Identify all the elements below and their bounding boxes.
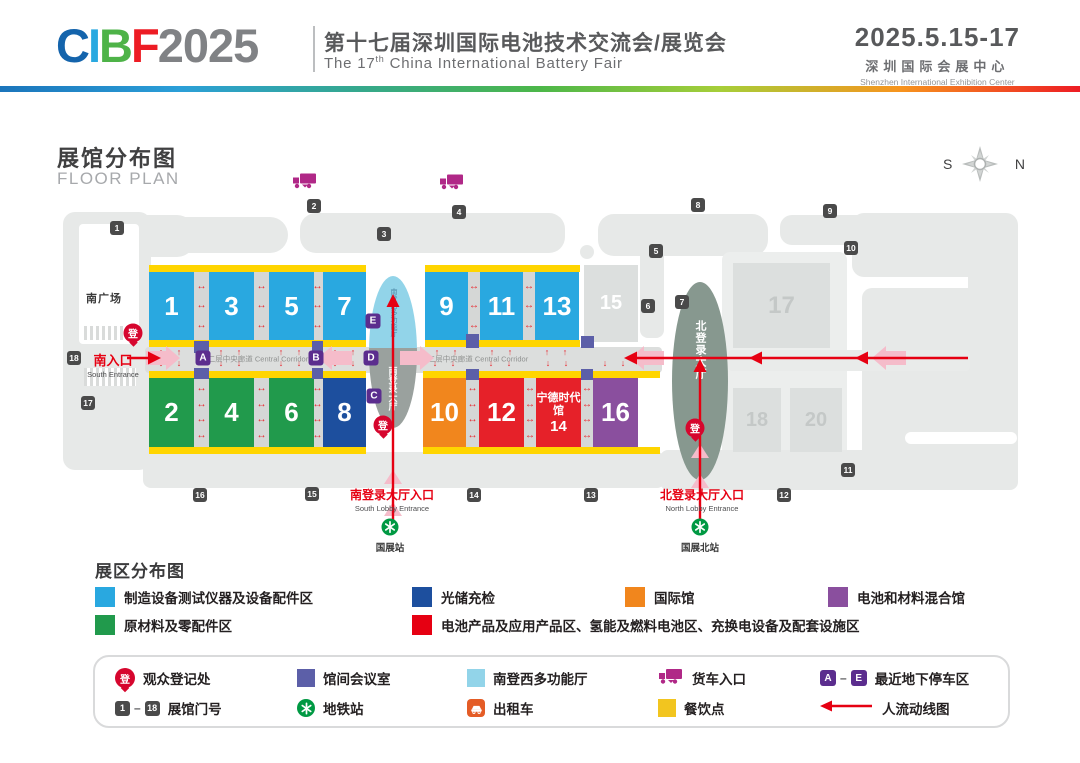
- zone-color-swatch: [625, 587, 645, 607]
- down-arrow-icon: ↓: [177, 359, 182, 368]
- truck-entrance-icon: [658, 667, 684, 690]
- gate-5: 5: [649, 244, 663, 258]
- hall-gap-corridor: ↔↔↔: [468, 272, 480, 340]
- two-way-arrow-icon: ↔: [582, 431, 592, 441]
- two-way-arrow-icon: ↔: [197, 282, 207, 292]
- zone-legend-item: 电池产品及应用产品区、氢能及燃料电池区、充换电设备及配套设施区: [412, 614, 860, 636]
- zone-legend-label: 国际馆: [654, 587, 695, 607]
- meeting-room-square: [466, 369, 479, 380]
- legend-item-metro: 地铁站: [297, 696, 364, 720]
- cibf-logo: CIBF2025: [56, 20, 258, 72]
- hall-yellow-strip: [425, 265, 580, 272]
- hall-16: 16: [593, 378, 638, 447]
- two-way-arrow-icon: ↔: [525, 400, 535, 410]
- two-way-arrow-icon: ↔: [469, 321, 479, 331]
- legend-item-food: 餐饮点: [658, 696, 725, 720]
- hall-yellow-strip: [425, 340, 580, 347]
- hall-1: 1: [149, 272, 194, 340]
- two-way-arrow-icon: ↔: [197, 400, 207, 410]
- zone-legend-item: 光储充检: [412, 586, 495, 608]
- down-arrow-icon: ↓: [621, 359, 626, 368]
- hall-yellow-strip: [149, 340, 366, 347]
- up-arrow-icon: ↑: [159, 348, 164, 357]
- zone-legend-item: 电池和材料混合馆: [828, 586, 965, 608]
- two-way-arrow-icon: ↔: [525, 384, 535, 394]
- legend-item-reg: 登观众登记处: [115, 666, 211, 690]
- hall-4: 4: [209, 378, 254, 447]
- truck-entrance-icon: [439, 173, 465, 196]
- hall-yellow-strip: [149, 371, 366, 378]
- two-way-arrow-icon: ↔: [257, 282, 267, 292]
- metro-station-label: 国展站: [376, 540, 405, 554]
- hall-20: 20: [790, 388, 842, 452]
- gate-7: 7: [675, 295, 689, 309]
- hall-yellow-strip: [149, 447, 366, 454]
- zone-color-swatch: [412, 615, 432, 635]
- south-entrance-label: 南入口 South Entrance: [87, 350, 139, 379]
- hall-17: 17: [733, 263, 830, 348]
- event-title-zh: 第十七届深圳国际电池技术交流会/展览会: [324, 27, 727, 57]
- down-arrow-icon: ↓: [546, 359, 551, 368]
- hall-14: 宁德时代馆14: [536, 378, 581, 447]
- two-way-arrow-icon: ↔: [257, 301, 267, 311]
- hall-gap-corridor: ↔↔↔: [194, 272, 209, 340]
- zone-legend-title: 展区分布图: [95, 557, 185, 582]
- central-corridor-label: 二层中央廊道 Central Corridor: [428, 354, 528, 365]
- legend-label: 馆间会议室: [323, 668, 391, 688]
- metro-station-icon: [692, 519, 709, 536]
- venue-zh: 深圳国际会展中心: [855, 56, 1020, 75]
- hall-2: 2: [149, 378, 194, 447]
- gate-3: 3: [377, 227, 391, 241]
- zone-color-swatch: [412, 587, 432, 607]
- zone-legend-item: 制造设备测试仪器及设备配件区: [95, 586, 313, 608]
- parking-marker-E: E: [366, 314, 381, 329]
- gate-range-icon: 1–18: [115, 701, 160, 716]
- two-way-arrow-icon: ↔: [525, 415, 535, 425]
- down-arrow-icon: ↓: [351, 359, 356, 368]
- two-way-arrow-icon: ↔: [468, 384, 478, 394]
- map-blob: [143, 452, 665, 488]
- hall-3: 3: [209, 272, 254, 340]
- two-way-arrow-icon: ↔: [257, 431, 267, 441]
- logo-divider: [313, 26, 315, 72]
- gate-11: 11: [841, 463, 855, 477]
- two-way-arrow-icon: ↔: [197, 301, 207, 311]
- two-way-arrow-icon: ↔: [313, 431, 323, 441]
- hall-yellow-strip: [149, 265, 366, 272]
- hall-9: 9: [425, 272, 468, 340]
- two-way-arrow-icon: ↔: [468, 400, 478, 410]
- parking-marker-C: C: [367, 389, 382, 404]
- hall-18: 18: [733, 388, 781, 452]
- zone-legend-label: 电池和材料混合馆: [857, 587, 965, 607]
- legend-label: 最近地下停车区: [875, 668, 970, 688]
- hall-13: 13: [535, 272, 579, 340]
- meeting-room-square: [581, 369, 593, 380]
- hall-gap-corridor: ↔↔↔↔: [466, 378, 479, 447]
- gate-16: 16: [193, 488, 207, 502]
- gate-9: 9: [823, 204, 837, 218]
- meeting-room-square: [194, 368, 209, 379]
- down-arrow-icon: ↓: [333, 359, 338, 368]
- two-way-arrow-icon: ↔: [257, 415, 267, 425]
- two-way-arrow-icon: ↔: [524, 301, 534, 311]
- meeting-room-square: [581, 336, 594, 348]
- two-way-arrow-icon: ↔: [582, 400, 592, 410]
- central-corridor-label: 二层中央廊道 Central Corridor: [208, 354, 308, 365]
- compass-icon: S N: [938, 143, 1028, 185]
- zone-legend-label: 原材料及零配件区: [124, 615, 232, 635]
- two-way-arrow-icon: ↔: [313, 301, 323, 311]
- gate-8: 8: [691, 198, 705, 212]
- two-way-arrow-icon: ↔: [197, 415, 207, 425]
- hall-yellow-strip: [423, 371, 660, 378]
- two-way-arrow-icon: ↔: [313, 321, 323, 331]
- two-way-arrow-icon: ↔: [313, 282, 323, 292]
- legend-item-ae: A–E最近地下停车区: [820, 666, 969, 690]
- registration-icon: 登: [124, 324, 143, 343]
- down-arrow-icon: ↓: [159, 359, 164, 368]
- meeting-room-square: [312, 368, 323, 379]
- meeting-room-swatch: [297, 669, 315, 687]
- gate-15: 15: [305, 487, 319, 501]
- gate-14: 14: [467, 488, 481, 502]
- meeting-room-square: [466, 334, 479, 348]
- map-blob: [300, 213, 565, 253]
- map-road: [905, 432, 1017, 444]
- down-arrow-icon: ↓: [603, 359, 608, 368]
- up-arrow-icon: ↑: [333, 348, 338, 357]
- hall-gap-corridor: ↔↔↔↔: [581, 378, 593, 447]
- map-blob: [598, 214, 768, 256]
- gate-18: 18: [67, 351, 81, 365]
- hall-yellow-strip: [423, 447, 660, 454]
- gate-6: 6: [641, 299, 655, 313]
- zone-legend-label: 电池产品及应用产品区、氢能及燃料电池区、充换电设备及配套设施区: [441, 615, 860, 635]
- plan-title-en: FLOOR PLAN: [57, 169, 180, 189]
- hall-7: 7: [323, 272, 366, 340]
- two-way-arrow-icon: ↔: [197, 431, 207, 441]
- hall-11: 11: [480, 272, 523, 340]
- two-way-arrow-icon: ↔: [197, 321, 207, 331]
- south-plaza-label: 南广场: [86, 290, 122, 306]
- gate-2: 2: [307, 199, 321, 213]
- parking-marker-D: D: [364, 351, 379, 366]
- two-way-arrow-icon: ↔: [257, 400, 267, 410]
- up-arrow-icon: ↑: [351, 348, 356, 357]
- zone-color-swatch: [95, 587, 115, 607]
- two-way-arrow-icon: ↔: [582, 384, 592, 394]
- zone-legend-label: 制造设备测试仪器及设备配件区: [124, 587, 313, 607]
- gate-17: 17: [81, 396, 95, 410]
- legend-item-taxi: 出租车: [467, 696, 534, 720]
- metro-station-icon: [297, 699, 315, 717]
- parking-range-icon: A–E: [820, 670, 867, 686]
- zone-legend-label: 光储充检: [441, 587, 495, 607]
- metro-station-label: 国展北站: [681, 540, 719, 554]
- gate-10: 10: [844, 241, 858, 255]
- parking-marker-A: A: [196, 351, 211, 366]
- taxi-icon: [467, 699, 485, 717]
- parking-marker-A: A: [820, 670, 836, 686]
- hall-gap-corridor: ↔↔↔: [254, 272, 269, 340]
- hall-gap-corridor: ↔↔↔↔: [254, 378, 269, 447]
- legend-item-multi: 南登西多功能厅: [467, 666, 588, 690]
- two-way-arrow-icon: ↔: [197, 384, 207, 394]
- gate-1: 1: [110, 221, 124, 235]
- parking-marker-B: B: [309, 351, 324, 366]
- two-way-arrow-icon: ↔: [257, 321, 267, 331]
- zone-legend-item: 国际馆: [625, 586, 695, 608]
- legend-label: 展馆门号: [168, 698, 222, 718]
- legend-item-gates: 1–18展馆门号: [115, 696, 222, 720]
- rainbow-divider: [0, 86, 1080, 92]
- legend-item-flow: 人流动线图: [820, 696, 950, 720]
- legend-label: 地铁站: [323, 698, 364, 718]
- up-arrow-icon: ↑: [545, 348, 550, 357]
- catl-hall-label: 宁德时代馆: [536, 392, 581, 418]
- hall-gap-corridor: ↔↔↔↔: [194, 378, 209, 447]
- metro-station-icon: [382, 519, 399, 536]
- up-arrow-icon: ↑: [563, 348, 568, 357]
- down-arrow-icon: ↓: [564, 359, 569, 368]
- legend-label: 人流动线图: [882, 698, 950, 718]
- event-date: 2025.5.15-17: [855, 22, 1020, 53]
- zone-color-swatch: [95, 615, 115, 635]
- zone-color-swatch: [828, 587, 848, 607]
- food-point-swatch: [658, 699, 676, 717]
- two-way-arrow-icon: ↔: [525, 431, 535, 441]
- up-arrow-icon: ↑: [177, 348, 182, 357]
- legend-item-truck: 货车入口: [658, 666, 746, 690]
- south-lobby-entrance-label: 南登录大厅入口 South Lobby Entrance: [350, 486, 434, 513]
- gate-1-icon: 1: [115, 701, 130, 716]
- legend-label: 观众登记处: [143, 668, 211, 688]
- legend-label: 出租车: [493, 698, 534, 718]
- map-blob: [728, 350, 970, 371]
- registration-icon: 登: [686, 419, 705, 438]
- gate-12: 12: [777, 488, 791, 502]
- legend-item-meeting: 馆间会议室: [297, 666, 391, 690]
- two-way-arrow-icon: ↔: [524, 321, 534, 331]
- two-way-arrow-icon: ↔: [469, 282, 479, 292]
- two-way-arrow-icon: ↔: [468, 415, 478, 425]
- event-date-venue: 2025.5.15-17 深圳国际会展中心 Shenzhen Internati…: [855, 22, 1020, 87]
- hall-gap-corridor: ↔↔↔: [523, 272, 535, 340]
- event-title-en: The 17th China International Battery Fai…: [324, 54, 623, 72]
- map-blob: [580, 245, 594, 259]
- two-way-arrow-icon: ↔: [313, 415, 323, 425]
- registration-icon: 登: [374, 416, 393, 435]
- hall-6: 6: [269, 378, 314, 447]
- two-way-arrow-icon: ↔: [257, 384, 267, 394]
- two-way-arrow-icon: ↔: [313, 384, 323, 394]
- hall-15: 15: [584, 265, 638, 342]
- gate-18-icon: 18: [145, 701, 160, 716]
- hall-10: 10: [423, 378, 466, 447]
- legend-label: 南登西多功能厅: [493, 668, 588, 688]
- gate-13: 13: [584, 488, 598, 502]
- multifunction-hall-swatch: [467, 669, 485, 687]
- cibf-floor-plan-page: CIBF2025 第十七届深圳国际电池技术交流会/展览会 The 17th Ch…: [0, 0, 1080, 763]
- hall-5: 5: [269, 272, 314, 340]
- truck-entrance-icon: [292, 172, 318, 195]
- two-way-arrow-icon: ↔: [582, 415, 592, 425]
- gate-4: 4: [452, 205, 466, 219]
- two-way-arrow-icon: ↔: [469, 301, 479, 311]
- north-lobby: 北登录大厅: [672, 282, 728, 480]
- zone-legend-item: 原材料及零配件区: [95, 614, 232, 636]
- hall-8: 8: [323, 378, 366, 447]
- parking-marker-E: E: [851, 670, 867, 686]
- legend-label: 货车入口: [692, 668, 746, 688]
- two-way-arrow-icon: ↔: [524, 282, 534, 292]
- registration-icon: 登: [115, 668, 135, 688]
- two-way-arrow-icon: ↔: [313, 400, 323, 410]
- hall-gap-corridor: ↔↔↔↔: [524, 378, 536, 447]
- flow-arrow-icon: [820, 699, 874, 718]
- north-lobby-entrance-label: 北登录大厅入口 North Lobby Entrance: [660, 486, 744, 513]
- catl-hall-number: 14: [550, 420, 567, 433]
- legend-label: 餐饮点: [684, 698, 725, 718]
- south-west-multifunction-hall: 南登西多功能厅: [369, 276, 417, 348]
- hall-12: 12: [479, 378, 524, 447]
- two-way-arrow-icon: ↔: [468, 431, 478, 441]
